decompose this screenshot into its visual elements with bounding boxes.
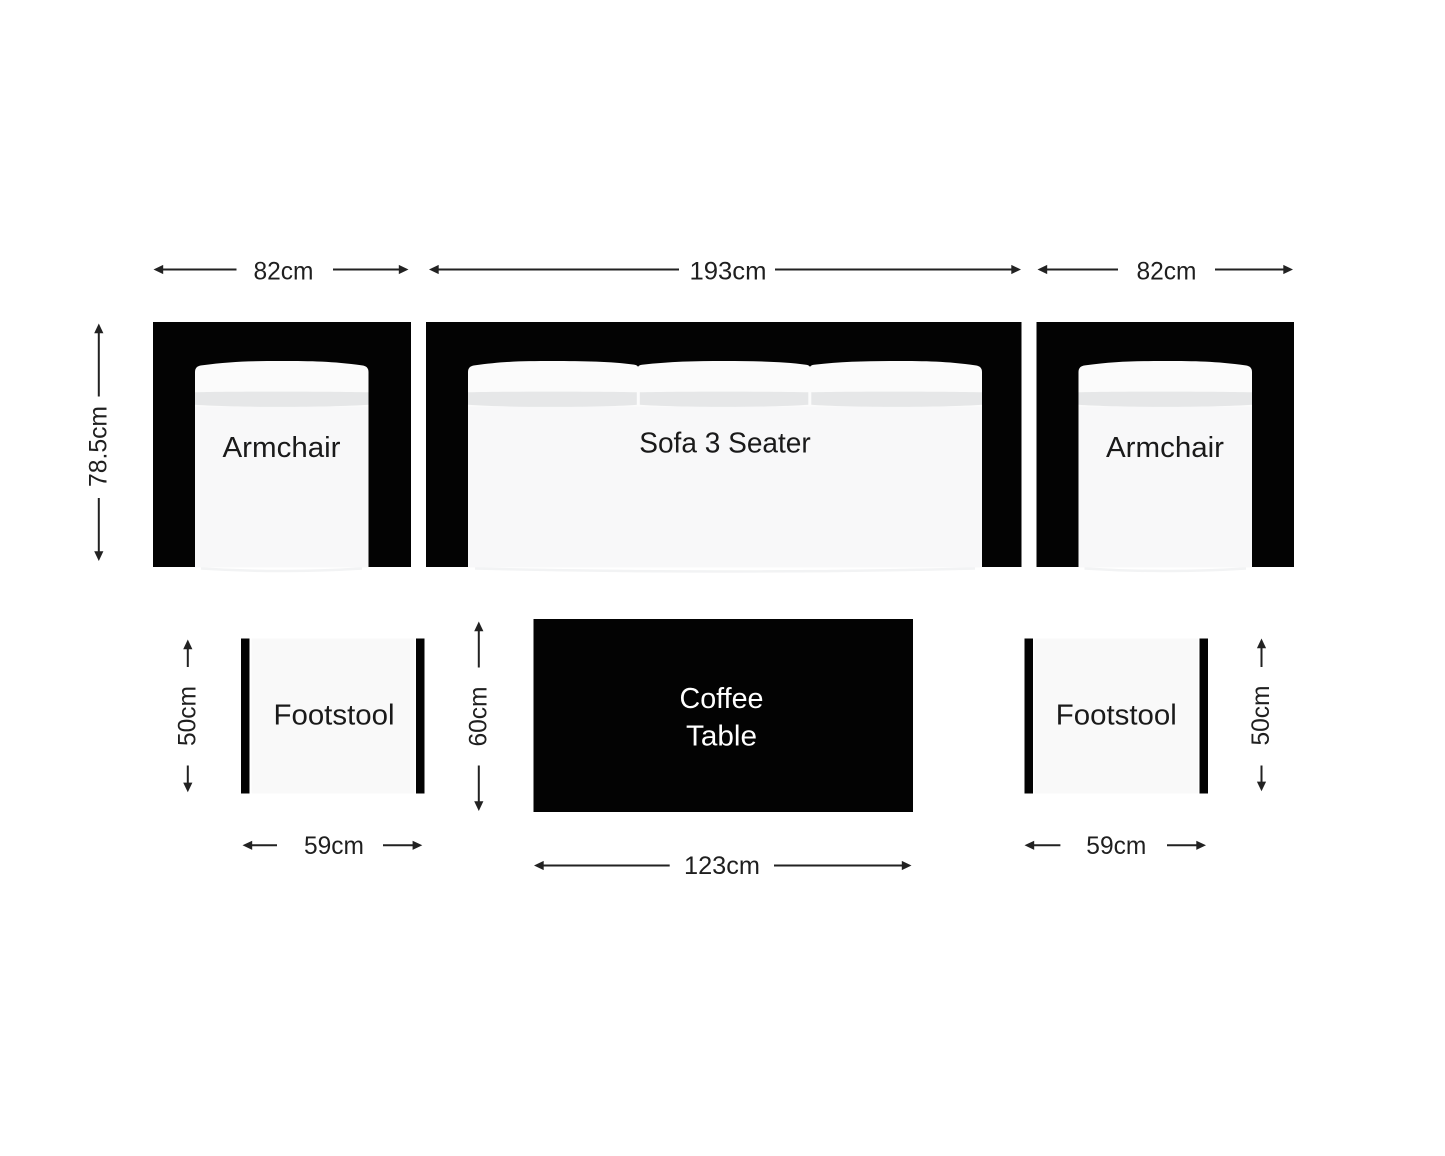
svg-text:59cm: 59cm bbox=[304, 832, 364, 860]
svg-text:59cm: 59cm bbox=[1086, 832, 1146, 860]
svg-text:82cm: 82cm bbox=[1137, 258, 1197, 286]
svg-text:60cm: 60cm bbox=[465, 687, 493, 747]
svg-text:50cm: 50cm bbox=[174, 686, 202, 746]
svg-text:193cm: 193cm bbox=[690, 258, 767, 286]
svg-text:Sofa 3 Seater: Sofa 3 Seater bbox=[639, 428, 811, 460]
svg-text:Table: Table bbox=[686, 721, 757, 753]
svg-text:78.5cm: 78.5cm bbox=[85, 406, 113, 487]
svg-text:Coffee: Coffee bbox=[680, 683, 764, 715]
svg-text:Armchair: Armchair bbox=[1106, 432, 1224, 464]
svg-text:50cm: 50cm bbox=[1247, 686, 1275, 746]
svg-text:Footstool: Footstool bbox=[1056, 700, 1177, 732]
svg-text:Footstool: Footstool bbox=[274, 700, 395, 732]
svg-text:123cm: 123cm bbox=[684, 852, 760, 880]
svg-text:Armchair: Armchair bbox=[223, 432, 341, 464]
svg-text:82cm: 82cm bbox=[254, 258, 314, 286]
